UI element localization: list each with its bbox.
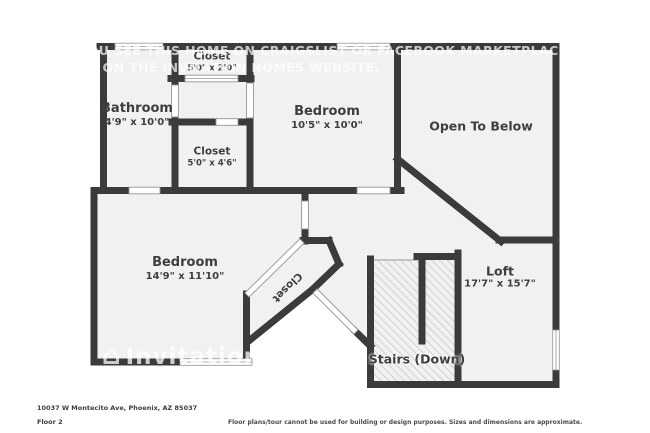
door-opening (302, 201, 309, 229)
room-name: Bathroom (101, 101, 173, 117)
brand-watermark: ⌂Invitation Homes (102, 341, 363, 371)
footer-disclaimer: Floor plans/tour cannot be used for buil… (228, 419, 608, 426)
fraud-watermark-line1: IF YOU SEE THIS HOME ON CRAIGSLIST OR FA… (60, 42, 648, 59)
door-opening (216, 119, 238, 126)
room-label-closet-lower: Closet 5'0" x 4'6" (187, 145, 236, 168)
room-dims: 10'5" x 10'0" (291, 120, 363, 133)
brand-watermark-text: Invitation Homes (126, 344, 364, 370)
room-name: Closet (187, 145, 236, 158)
room-label-bedroom-lower: Bedroom 14'9" x 11'10" (146, 255, 225, 283)
room-name: Stairs (Down) (369, 352, 466, 367)
room-dims: 17'7" x 15'7" (464, 278, 536, 291)
room-label-stairs: Stairs (Down) (369, 352, 466, 367)
floor-area (91, 43, 560, 388)
room-name: Loft (464, 263, 536, 278)
room-name: Open To Below (429, 119, 533, 134)
house-logo-icon: ⌂ (102, 341, 122, 371)
door-opening (129, 187, 160, 194)
room-label-bathroom: Bathroom 4'9" x 10'0" (101, 101, 173, 129)
door-opening (357, 187, 390, 194)
fraud-watermark-line2: ONLY ON THE INVITATION HOMES WEBSITE. (60, 59, 648, 76)
room-label-open-to-below: Open To Below (429, 119, 533, 134)
room-dims: 4'9" x 10'0" (101, 117, 173, 130)
room-name: Bedroom (146, 255, 225, 271)
room-label-loft: Loft 17'7" x 15'7" (464, 263, 536, 291)
floorplan-page: IF YOU SEE THIS HOME ON CRAIGSLIST OR FA… (0, 0, 650, 433)
fraud-watermark: IF YOU SEE THIS HOME ON CRAIGSLIST OR FA… (60, 42, 648, 77)
footer-floor-label: Floor 2 (37, 418, 63, 426)
door-opening (247, 83, 254, 118)
room-dims: 5'0" x 4'6" (187, 158, 236, 169)
window (553, 330, 560, 370)
footer-address: 10037 W Montecito Ave, Phoenix, AZ 85037 (37, 404, 197, 412)
room-label-bedroom-upper: Bedroom 10'5" x 10'0" (291, 104, 363, 132)
room-name: Bedroom (291, 104, 363, 120)
room-dims: 14'9" x 11'10" (146, 271, 225, 284)
